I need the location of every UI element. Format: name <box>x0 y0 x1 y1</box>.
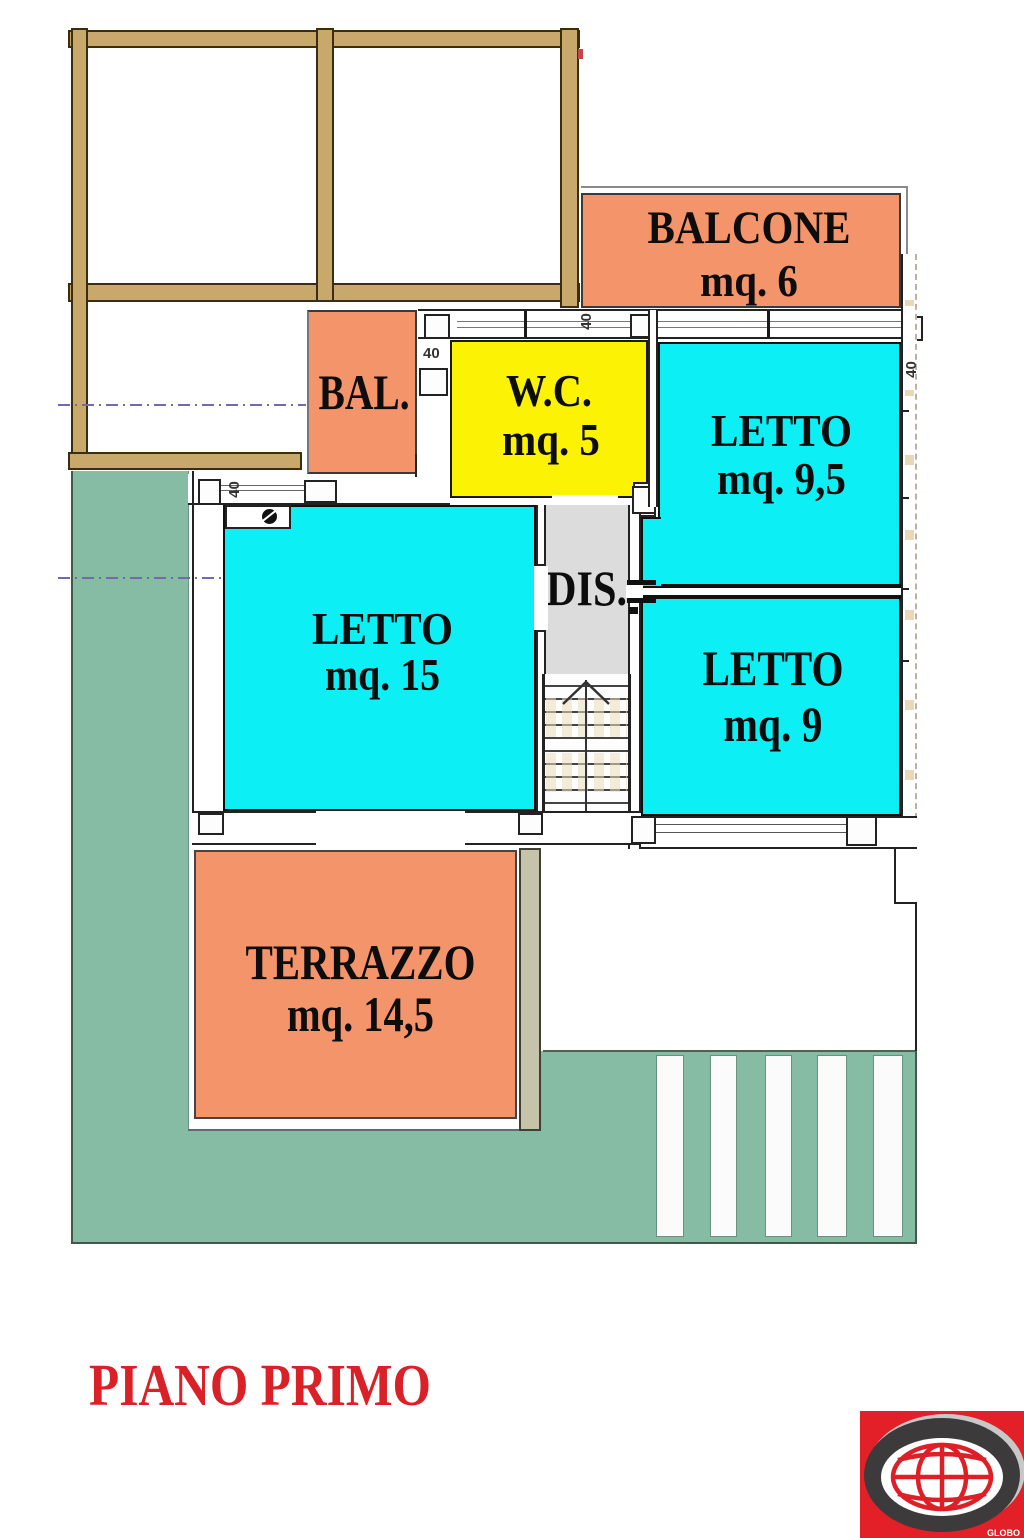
svg-text:GLOBO: GLOBO <box>987 1528 1020 1538</box>
